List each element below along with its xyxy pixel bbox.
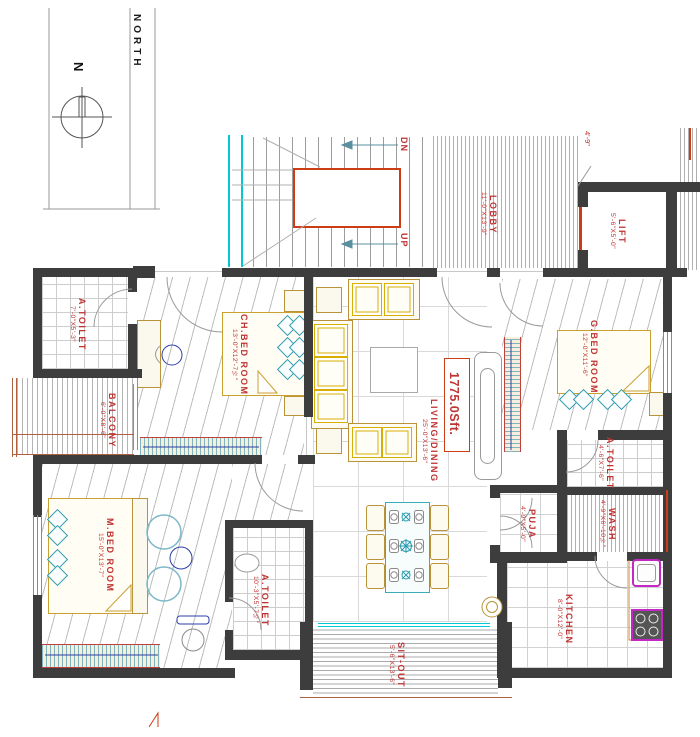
- room-dim: 7'-0"X5'-3": [68, 288, 76, 360]
- wash-basin-icon: [482, 597, 502, 617]
- room-dim: 8'-0"X12'-0": [555, 585, 563, 653]
- dimension-label: 4'-9": [583, 131, 592, 165]
- room-dim: 4'-9"X6'-10½": [598, 493, 606, 555]
- door-swing-arc: [500, 283, 543, 326]
- room-name: A.TOILET: [76, 288, 87, 360]
- north-label: NORTH: [131, 14, 142, 106]
- room-label-kitchen: KITCHEN 8'-0"X12'-0": [555, 585, 574, 653]
- door-swing-arc: [255, 463, 303, 511]
- room-dim: 5'-6"X5'-0": [608, 200, 616, 262]
- room-name: KITCHEN: [563, 585, 574, 653]
- room-label-living-dining: LIVING/DINING 25'-0"X13'-6": [420, 388, 439, 494]
- door-swing-arc: [94, 289, 132, 327]
- stool-icon: [156, 345, 183, 365]
- stair-dn-label: DN: [399, 131, 409, 157]
- total-area-label: 1775.0Sft.: [447, 362, 461, 446]
- door-swing-arc: [566, 440, 598, 472]
- room-label-ch-bed: CH.BED ROOM 13'-0"X12'-7½": [230, 312, 249, 398]
- room-label-a-toilet-3: A.TOILET 10'-3"X5'-7½": [251, 555, 270, 645]
- compass-icon: [52, 87, 112, 148]
- stair-up-label: UP: [399, 227, 409, 253]
- room-label-a-toilet-2: A.TOILET 4'-6"X7'-6": [596, 437, 615, 489]
- up-arrow-icon: [342, 240, 398, 248]
- room-label-m-bed: M.BED ROOM 15'-0"X13'-7": [96, 516, 115, 594]
- dim-leader-line: [578, 166, 591, 186]
- room-name: A.TOILET: [604, 437, 615, 489]
- room-label-lobby: LOBBY 11'-0"X13'-9": [479, 166, 498, 262]
- door-swing-arc: [167, 277, 222, 332]
- room-label-wash: WASH 4'-9"X6'-10½": [598, 493, 617, 555]
- room-name: CH.BED ROOM: [238, 312, 249, 398]
- room-name: LIVING/DINING: [428, 388, 439, 494]
- room-name: M.BED ROOM: [104, 516, 115, 594]
- stair-lines: [232, 138, 320, 266]
- room-name: BALCONY: [106, 383, 117, 457]
- door-swing-arcs: [94, 277, 627, 630]
- desk-chair-icon: [177, 616, 209, 651]
- lounge-chairs: [147, 515, 181, 601]
- room-name: SIT-OUT: [395, 633, 406, 697]
- door-swing-arc: [595, 556, 627, 588]
- room-dim: 5'-6"X13'-6": [387, 633, 395, 697]
- room-dim: 13'-0"X12'-7½": [230, 312, 238, 398]
- room-label-sit-out: SIT-OUT 5'-6"X13'-6": [387, 633, 406, 697]
- blanket-folds: [106, 366, 649, 611]
- sink-icon: [633, 560, 660, 586]
- room-name: A.TOILET: [259, 555, 270, 645]
- floor-plan: NORTH N DN UP 4'-9" 1775.0Sft. LOBBY 11'…: [0, 0, 700, 737]
- room-name: LIFT: [616, 200, 627, 262]
- room-name: LOBBY: [487, 166, 498, 262]
- room-label-balcony: BALCONY 6'-0"X8'-6": [98, 383, 117, 457]
- room-name: WASH: [606, 493, 617, 555]
- dn-arrow-icon: [342, 141, 398, 149]
- room-dim: 4'-6"X7'-6": [596, 437, 604, 489]
- room-name: G.BED ROOM: [588, 320, 599, 390]
- stove-icon: [632, 610, 662, 640]
- room-label-puja: PUJA 4'-9"X5'-0": [518, 497, 537, 551]
- room-dim: 12'-0"X11'-6": [580, 320, 588, 390]
- side-table: [170, 547, 192, 569]
- centerpiece-icons: [399, 513, 413, 579]
- door-swing-arc: [442, 277, 492, 327]
- compass-n-label: N: [71, 62, 86, 82]
- room-name: PUJA: [526, 497, 537, 551]
- room-dim: 4'-9"X5'-0": [518, 497, 526, 551]
- room-label-a-toilet-1: A.TOILET 7'-0"X5'-3": [68, 288, 87, 360]
- room-dim: 6'-0"X8'-6": [98, 383, 106, 457]
- room-dim: 10'-3"X5'-7½": [251, 555, 259, 645]
- room-dim: 11'-0"X13'-9": [479, 166, 487, 262]
- room-dim: 25'-0"X13'-6": [420, 388, 428, 494]
- room-label-lift: LIFT 5'-6"X5'-0": [608, 200, 627, 262]
- room-dim: 15'-0"X13'-7": [96, 516, 104, 594]
- section-marker-icon: [149, 713, 158, 727]
- room-label-g-bed: G.BED ROOM 12'-0"X11'-6": [580, 320, 599, 390]
